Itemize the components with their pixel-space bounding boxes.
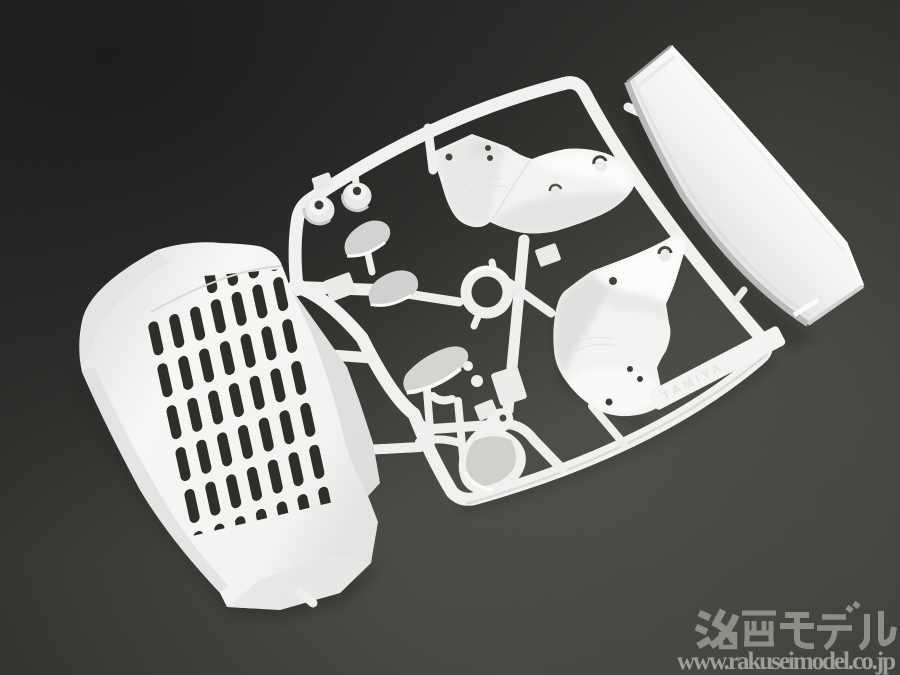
svg-text:www.rakuseimodel.co.jp: www.rakuseimodel.co.jp [677,648,896,675]
